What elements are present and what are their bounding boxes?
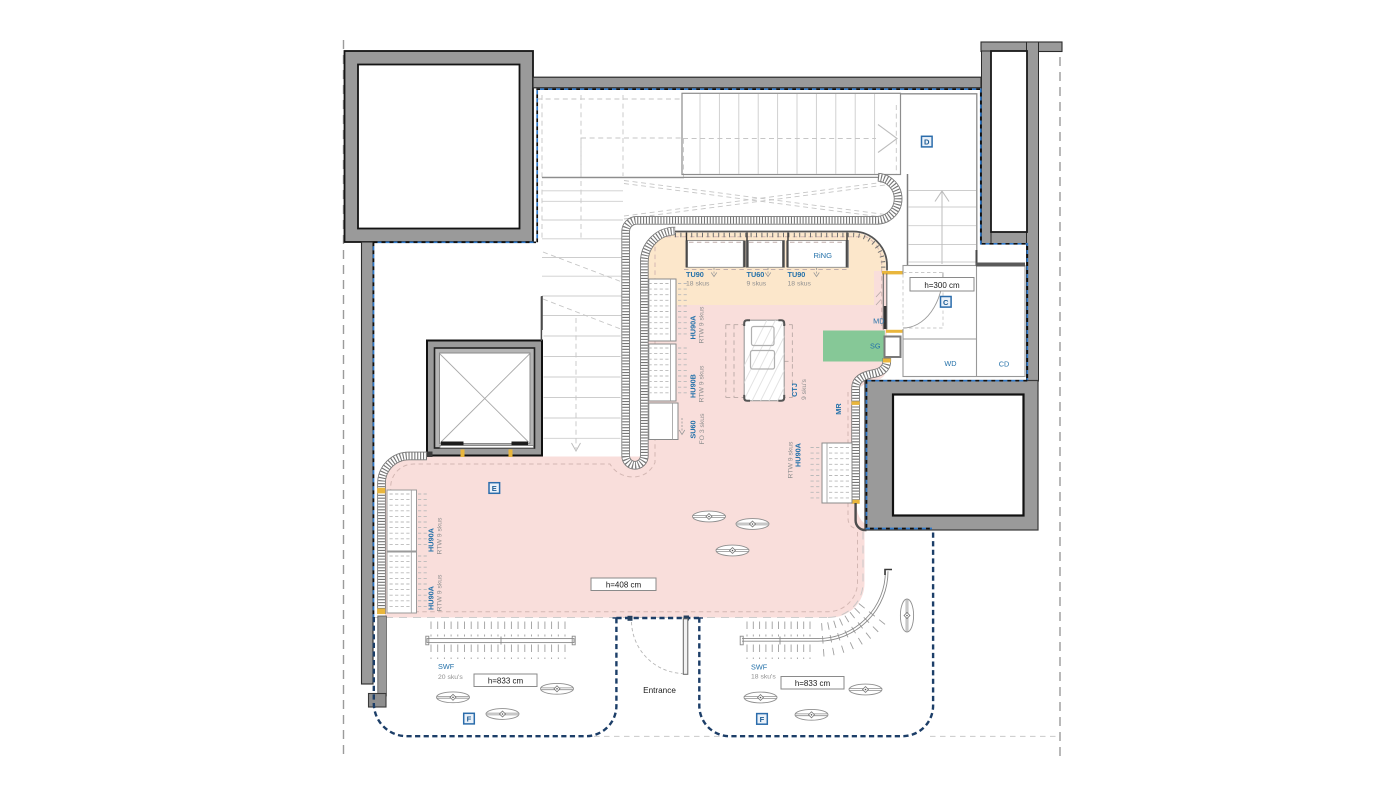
svg-text:SG: SG xyxy=(870,342,881,351)
svg-text:RTW 9 skus: RTW 9 skus xyxy=(437,517,444,554)
svg-text:RiNG: RiNG xyxy=(814,251,833,260)
svg-text:HU90A: HU90A xyxy=(427,527,436,552)
svg-text:RTW 9 skus: RTW 9 skus xyxy=(699,365,706,402)
svg-text:HU90A: HU90A xyxy=(427,585,436,610)
svg-text:TU90: TU90 xyxy=(686,270,704,279)
svg-text:TU60: TU60 xyxy=(747,270,765,279)
svg-text:D: D xyxy=(924,138,930,147)
svg-text:TU90: TU90 xyxy=(788,270,806,279)
svg-text:CD: CD xyxy=(999,360,1010,369)
svg-text:Entrance: Entrance xyxy=(643,686,676,695)
svg-text:RTW 9 skus: RTW 9 skus xyxy=(788,441,795,478)
svg-text:SWF: SWF xyxy=(438,662,455,671)
svg-text:18 skus: 18 skus xyxy=(686,281,710,288)
svg-text:E: E xyxy=(492,484,497,493)
svg-text:h=408 cm: h=408 cm xyxy=(606,580,642,589)
svg-text:FO 3 skus: FO 3 skus xyxy=(699,413,706,445)
svg-text:F: F xyxy=(467,715,472,724)
svg-text:9 skus: 9 skus xyxy=(747,281,767,288)
svg-text:9 sku's: 9 sku's xyxy=(801,378,808,400)
svg-text:18 sku's: 18 sku's xyxy=(751,674,776,681)
svg-text:20 sku's: 20 sku's xyxy=(438,674,463,681)
svg-text:MD: MD xyxy=(873,317,884,326)
svg-text:h=833 cm: h=833 cm xyxy=(488,676,524,685)
svg-text:HU90B: HU90B xyxy=(689,374,698,398)
svg-text:HU90A: HU90A xyxy=(794,442,803,467)
svg-text:SWF: SWF xyxy=(751,663,768,672)
svg-text:h=833 cm: h=833 cm xyxy=(795,679,831,688)
svg-text:C: C xyxy=(943,298,949,307)
svg-text:MR: MR xyxy=(834,403,843,415)
svg-text:RTW 9 skus: RTW 9 skus xyxy=(699,306,706,343)
svg-text:F: F xyxy=(760,715,765,724)
svg-text:SU60: SU60 xyxy=(689,420,698,438)
svg-text:h=300 cm: h=300 cm xyxy=(924,281,960,290)
svg-text:WD: WD xyxy=(944,359,956,368)
svg-text:HU90A: HU90A xyxy=(689,315,698,340)
svg-text:RTW 9 skus: RTW 9 skus xyxy=(437,574,444,611)
svg-text:CTJ: CTJ xyxy=(790,383,799,397)
svg-text:18 skus: 18 skus xyxy=(788,281,812,288)
